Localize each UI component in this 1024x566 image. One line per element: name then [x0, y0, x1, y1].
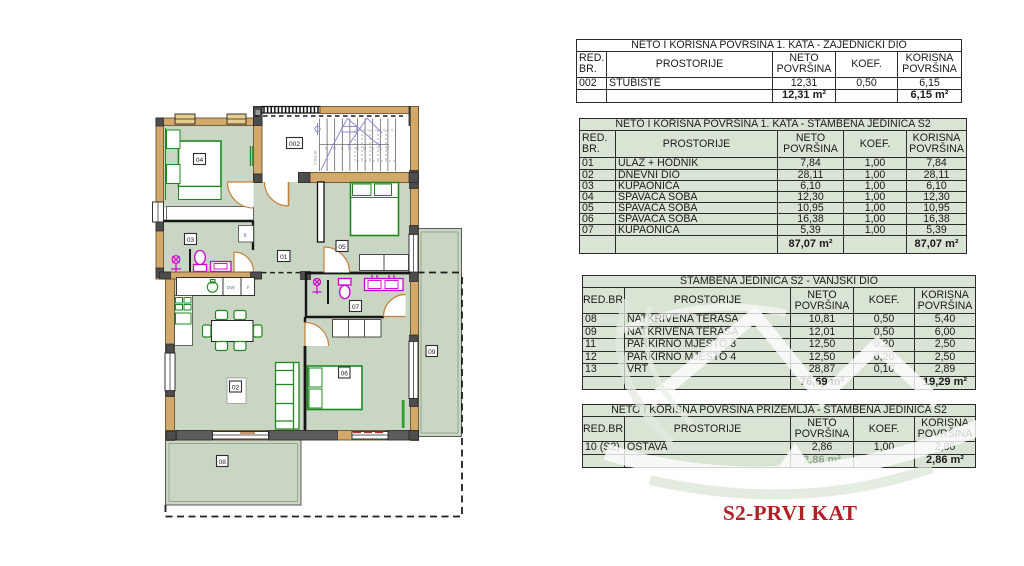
svg-text:03: 03 — [187, 237, 195, 244]
svg-text:07: 07 — [352, 304, 360, 311]
svg-text:08: 08 — [219, 459, 227, 466]
svg-text:04: 04 — [196, 157, 204, 164]
svg-text:13: 13 — [356, 147, 360, 151]
svg-text:09: 09 — [428, 349, 436, 356]
svg-text:11: 11 — [340, 147, 344, 151]
svg-text:F: F — [247, 285, 250, 290]
svg-text:12: 12 — [348, 147, 352, 151]
svg-text:05: 05 — [338, 244, 346, 251]
svg-text:06: 06 — [341, 370, 349, 377]
svg-text:14: 14 — [363, 147, 367, 151]
svg-text:02: 02 — [232, 384, 240, 391]
svg-text:002: 002 — [289, 141, 300, 148]
svg-text:B: B — [244, 233, 247, 239]
svg-text:15: 15 — [370, 147, 374, 151]
svg-text:0.00/2.80: 0.00/2.80 — [314, 150, 318, 165]
svg-text:17: 17 — [386, 147, 390, 151]
svg-text:10: 10 — [333, 147, 337, 151]
svg-text:01: 01 — [280, 254, 288, 261]
svg-text:9: 9 — [325, 147, 327, 151]
svg-text:DW: DW — [227, 285, 235, 290]
svg-text:16: 16 — [378, 147, 382, 151]
